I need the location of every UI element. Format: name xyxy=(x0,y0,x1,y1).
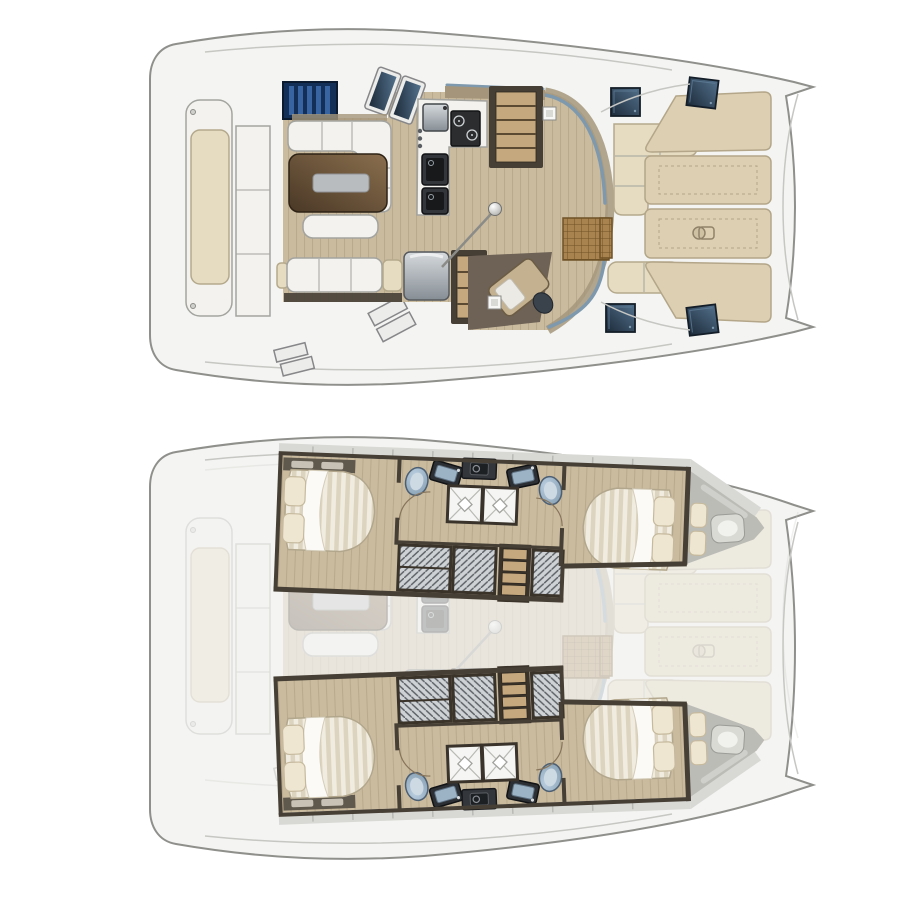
cleat xyxy=(191,110,196,115)
foredeck-sunpad-3 xyxy=(645,209,771,258)
hull-companionway-stairs xyxy=(497,544,531,603)
sofa-armrest xyxy=(383,260,402,291)
aft-cabin-double-bed xyxy=(282,469,376,552)
transom-bench-cushion xyxy=(191,130,229,284)
knob xyxy=(418,144,422,148)
faucet xyxy=(443,106,447,110)
serving-tray xyxy=(313,174,369,192)
shower-cubicle-aft xyxy=(447,486,482,523)
ottoman xyxy=(303,215,378,238)
deck-hatch-1 xyxy=(611,88,640,116)
hanging-wardrobe xyxy=(531,550,563,596)
stair-treads xyxy=(496,92,536,162)
deck-hatch-4 xyxy=(686,304,718,335)
page xyxy=(0,0,901,900)
lower-deck-plan xyxy=(150,437,813,859)
knob xyxy=(418,136,422,140)
fwd-teak-mat xyxy=(600,218,612,258)
forepeak-cushion xyxy=(689,531,706,556)
stern-platform xyxy=(186,100,270,316)
deck-hatch-2 xyxy=(686,77,718,108)
mast-base xyxy=(489,203,502,216)
companionway-stairs-port xyxy=(489,86,543,168)
floorplan-canvas xyxy=(0,0,901,900)
galley-stove xyxy=(451,111,480,146)
foredeck-sunpad-2 xyxy=(645,156,771,204)
forepeak-cushion xyxy=(690,503,707,528)
forepeak-pad xyxy=(710,513,745,543)
knob xyxy=(418,129,422,133)
hanging-wardrobe xyxy=(453,547,497,594)
main-deck-plan xyxy=(150,29,813,385)
cleat xyxy=(191,304,196,309)
aft-steps xyxy=(236,126,270,316)
deck-hatch-3 xyxy=(606,304,635,332)
forward-cabin-double-bed xyxy=(582,487,676,570)
aft-sofa xyxy=(287,258,382,292)
sofa-base-shelf xyxy=(284,293,402,302)
refrigerator xyxy=(404,252,449,300)
aft-sofa-group xyxy=(277,258,402,302)
sofa-backrest-ledge xyxy=(292,114,387,121)
shower-cubicle-forward xyxy=(482,487,517,524)
